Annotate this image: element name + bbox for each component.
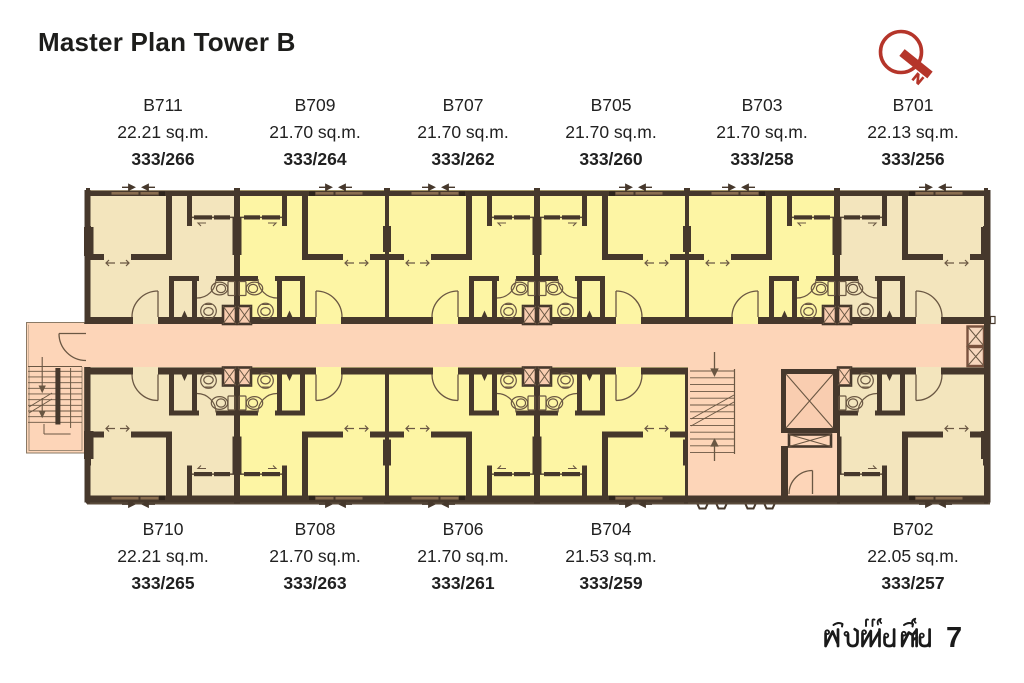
svg-text:7: 7 bbox=[946, 622, 962, 654]
